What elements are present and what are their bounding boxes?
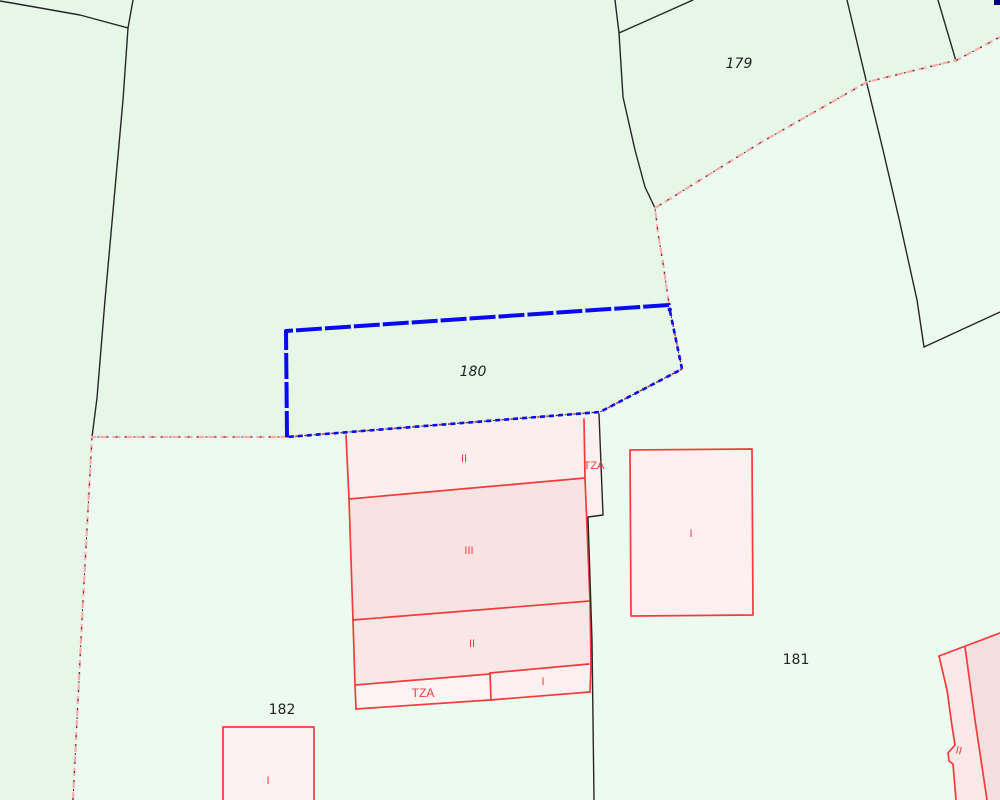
corner-boundary-mark — [994, 0, 1000, 5]
map-svg[interactable]: 179 180 181 182 II III II TZA I TZA I I … — [0, 0, 1000, 800]
building-label-bottom-left: I — [266, 775, 269, 787]
building-label-terrace: TZA — [412, 686, 435, 700]
building-label-terrace-strip: TZA — [584, 460, 605, 472]
building-label-floor-III: III — [464, 545, 473, 557]
building-bottom-left[interactable] — [223, 727, 314, 800]
building-label-floor-II-lower: II — [469, 638, 475, 650]
building-label-floor-I-band: I — [541, 676, 544, 688]
building-label-floor-II-top: II — [461, 453, 467, 465]
building-main[interactable] — [346, 415, 603, 709]
parcel-label-179: 179 — [726, 56, 753, 72]
cadastral-map-canvas[interactable]: 179 180 181 182 II III II TZA I TZA I I … — [0, 0, 1000, 800]
parcel-label-182: 182 — [269, 702, 296, 718]
parcel-label-181: 181 — [783, 652, 810, 668]
parcel-label-180: 180 — [460, 364, 487, 380]
building-main-divider-vertical — [490, 673, 491, 700]
building-label-right: I — [689, 528, 692, 540]
